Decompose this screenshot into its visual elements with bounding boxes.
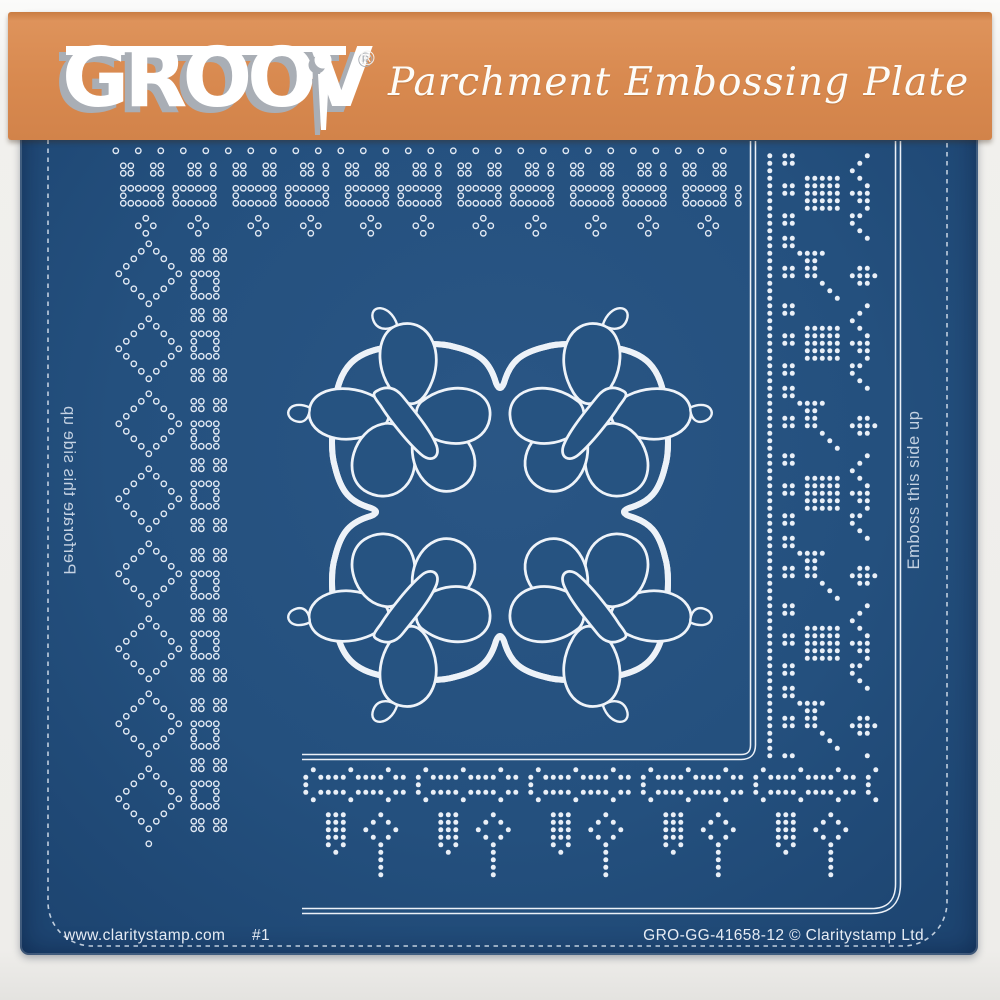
embossing-tool-i-icon bbox=[306, 50, 340, 136]
product-code: GRO-GG-41658-12 © Claritystamp Ltd bbox=[643, 927, 924, 945]
registered-mark: ® bbox=[360, 48, 375, 71]
emboss-side-note: Emboss this side up bbox=[905, 340, 929, 640]
groovi-logo: GROOV ® bbox=[60, 20, 390, 138]
website-url: www.claritystamp.com bbox=[64, 927, 225, 945]
outer-frame-lines bbox=[302, 141, 898, 911]
plate-number: #1 bbox=[252, 927, 270, 945]
product-type-title: Parchment Embossing Plate bbox=[388, 60, 969, 105]
bottom-dot-border bbox=[303, 767, 878, 877]
product-image: GROOV ® Parchment Embossing Plate Perfor… bbox=[0, 0, 1000, 1000]
right-dot-border bbox=[767, 153, 877, 758]
top-lace-border bbox=[113, 148, 741, 236]
brand-header-band: GROOV ® Parchment Embossing Plate bbox=[8, 12, 992, 140]
plate-artwork bbox=[0, 0, 1000, 1000]
lace-borders bbox=[113, 148, 878, 877]
left-lace-border bbox=[116, 241, 226, 846]
perforate-side-note: Perforate this side up bbox=[54, 340, 78, 640]
